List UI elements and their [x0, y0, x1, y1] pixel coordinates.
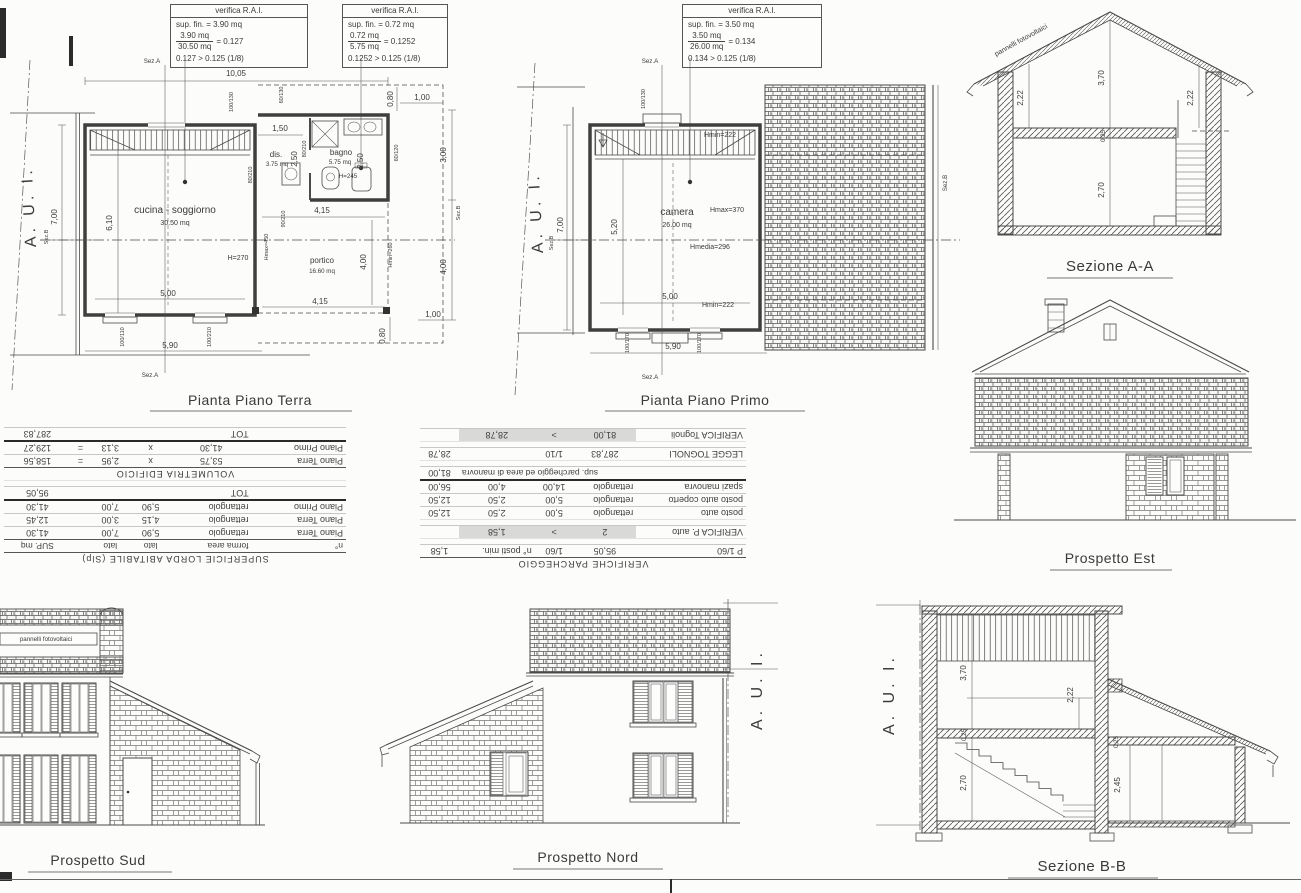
- room-height: H=270: [228, 255, 249, 262]
- window-size: 100/130: [229, 92, 235, 112]
- table-superficie-lorda: SUPERFICIE LORDA ABITABILE (Slp) n° form…: [4, 427, 346, 565]
- table-row: LEGGE TOGNOLI287,83 1/10 28,78: [420, 448, 746, 461]
- room-area: 5.75 mq: [329, 159, 352, 166]
- total-row: TOT 95,05: [4, 487, 346, 501]
- dim-label: 7,00: [50, 209, 59, 225]
- window-size: 100/170: [697, 333, 703, 353]
- dim-label: 3,70: [959, 665, 968, 681]
- dim-label: 0,80: [378, 328, 387, 344]
- window-size: 60/130: [279, 87, 285, 104]
- window-shuttered: [24, 755, 58, 823]
- table-row: Piano Terrarettangolo 4,153,00 12,45: [4, 514, 346, 527]
- rai-sup: sup. fin. = 3.90 mq: [176, 20, 303, 30]
- window-shuttered: [22, 683, 60, 737]
- prospetto-nord: A. U. I. Prospetto Nord: [370, 595, 790, 893]
- rai-sup: sup. fin. = 3.50 mq: [688, 20, 817, 30]
- dim-label: 0,80: [386, 91, 395, 107]
- window-shuttered: [62, 755, 96, 823]
- section-marker: Sez.B: [44, 229, 50, 244]
- dim-label: 3,00: [439, 147, 448, 163]
- drawing-title: Prospetto Sud: [50, 852, 145, 868]
- stair-section: [955, 743, 1095, 817]
- dim-label: 4,15: [312, 297, 328, 306]
- table-header-row: n° forma area lato lato SUP. mq: [4, 540, 346, 553]
- section-marker: Sez.B: [549, 235, 555, 250]
- brick-pier: [998, 454, 1010, 520]
- window-size: 100/110: [120, 327, 126, 346]
- dim-label: 5,90: [162, 341, 178, 350]
- section-title: VOLUMETRIA EDIFICIO: [4, 468, 346, 481]
- verifica-row: VERIFICA Tognoli81,00 >28,78: [420, 429, 746, 442]
- sezione-bb: A. U. I. 3,70 2,22 0,25 2,70 0,25 2,45 S…: [850, 595, 1301, 893]
- roof-plan: [765, 85, 938, 350]
- table-row: spazi manovrarettangolo 14,004,00 56,00: [420, 480, 746, 494]
- dim-label: 5,00: [160, 289, 176, 298]
- table-row: Piano Terra53,75 x2,95 =158,56: [4, 455, 346, 468]
- stair-section: [1154, 100, 1206, 226]
- dim-label: 2,22: [1016, 90, 1025, 106]
- window-shuttered: [60, 683, 98, 737]
- dim-label: 5,00: [662, 292, 678, 301]
- window-size: 100/130: [641, 89, 647, 109]
- rai-sup: sup. fin. = 0.72 mq: [348, 20, 443, 30]
- dim-label: 2,22: [1186, 90, 1195, 106]
- dim-label: 4,15: [314, 206, 330, 215]
- total-row: TOT 287,83: [4, 428, 346, 442]
- roof-slope: [975, 378, 1248, 446]
- prospetto-sud: pannelli fotovoltaici: [0, 595, 310, 893]
- table-row: posto autorettangolo 5,002,50 12,50: [420, 507, 746, 520]
- drawing-title: Prospetto Est: [1065, 550, 1156, 566]
- door-size: 80/210: [248, 167, 254, 184]
- table-verifiche-parcheggio: VERIFICHE PARCHEGGIO P 1/6095,05 1/60n° …: [420, 428, 746, 570]
- height-note: Hmax=370: [710, 207, 744, 214]
- rai-title: verifica R.A.I.: [683, 5, 821, 18]
- table-title: VERIFICHE PARCHEGGIO: [420, 558, 746, 571]
- room-label: portico: [310, 256, 335, 265]
- dim-label: 7,00: [556, 217, 565, 233]
- door-size: 90/210: [281, 211, 287, 228]
- stair-plan: [90, 130, 250, 155]
- section-marker: Sez.B: [456, 205, 462, 220]
- verifica-row: VERIFICA P. auto2 >1,58: [420, 526, 746, 539]
- rafter-band: [937, 615, 1095, 661]
- room-area: 16.60 mq: [309, 268, 335, 275]
- height-note: Hmax=450: [264, 234, 270, 261]
- dim-label: 1,00: [425, 310, 441, 319]
- dim-label: 2,70: [1097, 182, 1106, 198]
- plan-piano-terra: A. U. I. 10,05 Sez.A Sez.: [0, 55, 500, 420]
- rai-fraction: 3.90 mq30.50 mq: [176, 31, 213, 52]
- table-title: SUPERFICIE LORDA ABITABILE (Slp): [4, 553, 346, 566]
- table-row: P 1/6095,05 1/60n° posti min. 1,58: [420, 545, 746, 558]
- plan-piano-primo: A. U. I. Sez.A Sez.A 7,00 Sez.B 5,20 Hmi…: [505, 55, 965, 420]
- scan-edge-mark: [0, 8, 6, 58]
- room-label: cucina - soggiorno: [134, 205, 216, 216]
- height-note: Hmin=260: [388, 242, 394, 267]
- section-marker: Sez.A: [144, 58, 161, 65]
- window-shuttered: [0, 683, 22, 737]
- section-marker: Sez.A: [642, 374, 659, 381]
- dim-label: 2,50: [290, 151, 299, 167]
- table-row: Piano Primorettangolo 5,907,00 41,30: [4, 500, 346, 514]
- prospetto-est: Prospetto Est: [950, 290, 1301, 580]
- window-size: 60/120: [394, 145, 400, 162]
- rai-fraction: 0.72 mq5.75 mq: [348, 31, 381, 52]
- table-row: posto auto copertorettangolo 5,002,50 12…: [420, 494, 746, 507]
- dim-label: 3,70: [1097, 70, 1106, 86]
- drawing-title: Pianta Piano Primo: [641, 392, 770, 408]
- dim-label: 0,25: [1100, 129, 1107, 142]
- boundary-label: A. U. I.: [526, 172, 547, 254]
- window-size: 100/210: [207, 327, 213, 347]
- room-height: H=245: [339, 173, 358, 180]
- chimney: [100, 609, 123, 673]
- rai-title: verifica R.A.I.: [171, 5, 307, 18]
- section-marker: Sez.A: [642, 58, 659, 65]
- room-area: 30.50 mq: [160, 220, 189, 227]
- door-size: 80/210: [302, 141, 308, 158]
- dim-label: 1,50: [272, 124, 288, 133]
- window-shuttered: [0, 755, 20, 823]
- dim-label: 2,50: [356, 153, 365, 169]
- room-label: dis.: [270, 150, 282, 159]
- rai-fraction: 3.50 mq26.00 mq: [688, 31, 725, 52]
- brick-pier: [1216, 454, 1228, 520]
- pv-panels-note: pannelli fotovoltaici: [20, 636, 72, 643]
- section-marker: Sez.B: [942, 175, 949, 192]
- table-row: Piano Primo41,30 x3,13 =129,27: [4, 441, 346, 455]
- dim-label: 2,22: [1066, 687, 1075, 703]
- height-note: Hmedia=296: [690, 244, 730, 251]
- drawing-title: Pianta Piano Terra: [188, 392, 312, 408]
- window-shuttered: [630, 681, 696, 727]
- entry-door: [123, 758, 152, 825]
- boundary-label: A. U. I.: [19, 166, 40, 248]
- room-label: camera: [660, 207, 694, 218]
- dim-label: 2,70: [959, 775, 968, 791]
- section-marker: Sez.A: [142, 372, 159, 379]
- boundary-label: A. U. I.: [881, 654, 898, 735]
- sum-row: sup. parcheggio ed area di manovra 81,00: [420, 467, 746, 481]
- window-size: 100/170: [625, 333, 631, 353]
- dim-label: 4,00: [359, 254, 368, 270]
- height-note: Hmin=222: [704, 132, 736, 139]
- roof-slope: [530, 609, 730, 672]
- boundary-label: A. U. I.: [749, 649, 766, 730]
- dim-label: 10,05: [226, 69, 247, 78]
- dim-label: 0,25: [1113, 735, 1120, 748]
- drawing-title: Prospetto Nord: [537, 849, 638, 865]
- sezione-aa: 3,70 2,22 2,22 0,25 2,70 pannelli fotovo…: [950, 0, 1301, 290]
- rai-title: verifica R.A.I.: [343, 5, 447, 18]
- dim-label: 5,20: [610, 219, 619, 235]
- dim-label: 6,10: [105, 215, 114, 231]
- drawing-title: Sezione A-A: [1066, 258, 1154, 275]
- dim-label: 0,25: [961, 728, 968, 741]
- dim-label: 1,00: [414, 93, 430, 102]
- dim-label: 5,90: [665, 342, 681, 351]
- room-area: 3.75 mq: [266, 161, 289, 168]
- drawing-title: Sezione B-B: [1038, 858, 1127, 875]
- room-area: 26.00 mq: [662, 222, 691, 229]
- window-shuttered: [630, 753, 696, 802]
- room-label: bagno: [330, 148, 353, 157]
- window-shuttered: [490, 752, 528, 796]
- dim-label: 4,00: [439, 259, 448, 275]
- dim-label: 2,45: [1113, 777, 1122, 793]
- drawing-sheet: verifica R.A.I. sup. fin. = 3.90 mq 3.90…: [0, 0, 1301, 893]
- chimney: [1045, 299, 1067, 332]
- table-row: Piano Terrarettangolo 5,907,00 41,30: [4, 527, 346, 540]
- height-note: Hmin=222: [702, 302, 734, 309]
